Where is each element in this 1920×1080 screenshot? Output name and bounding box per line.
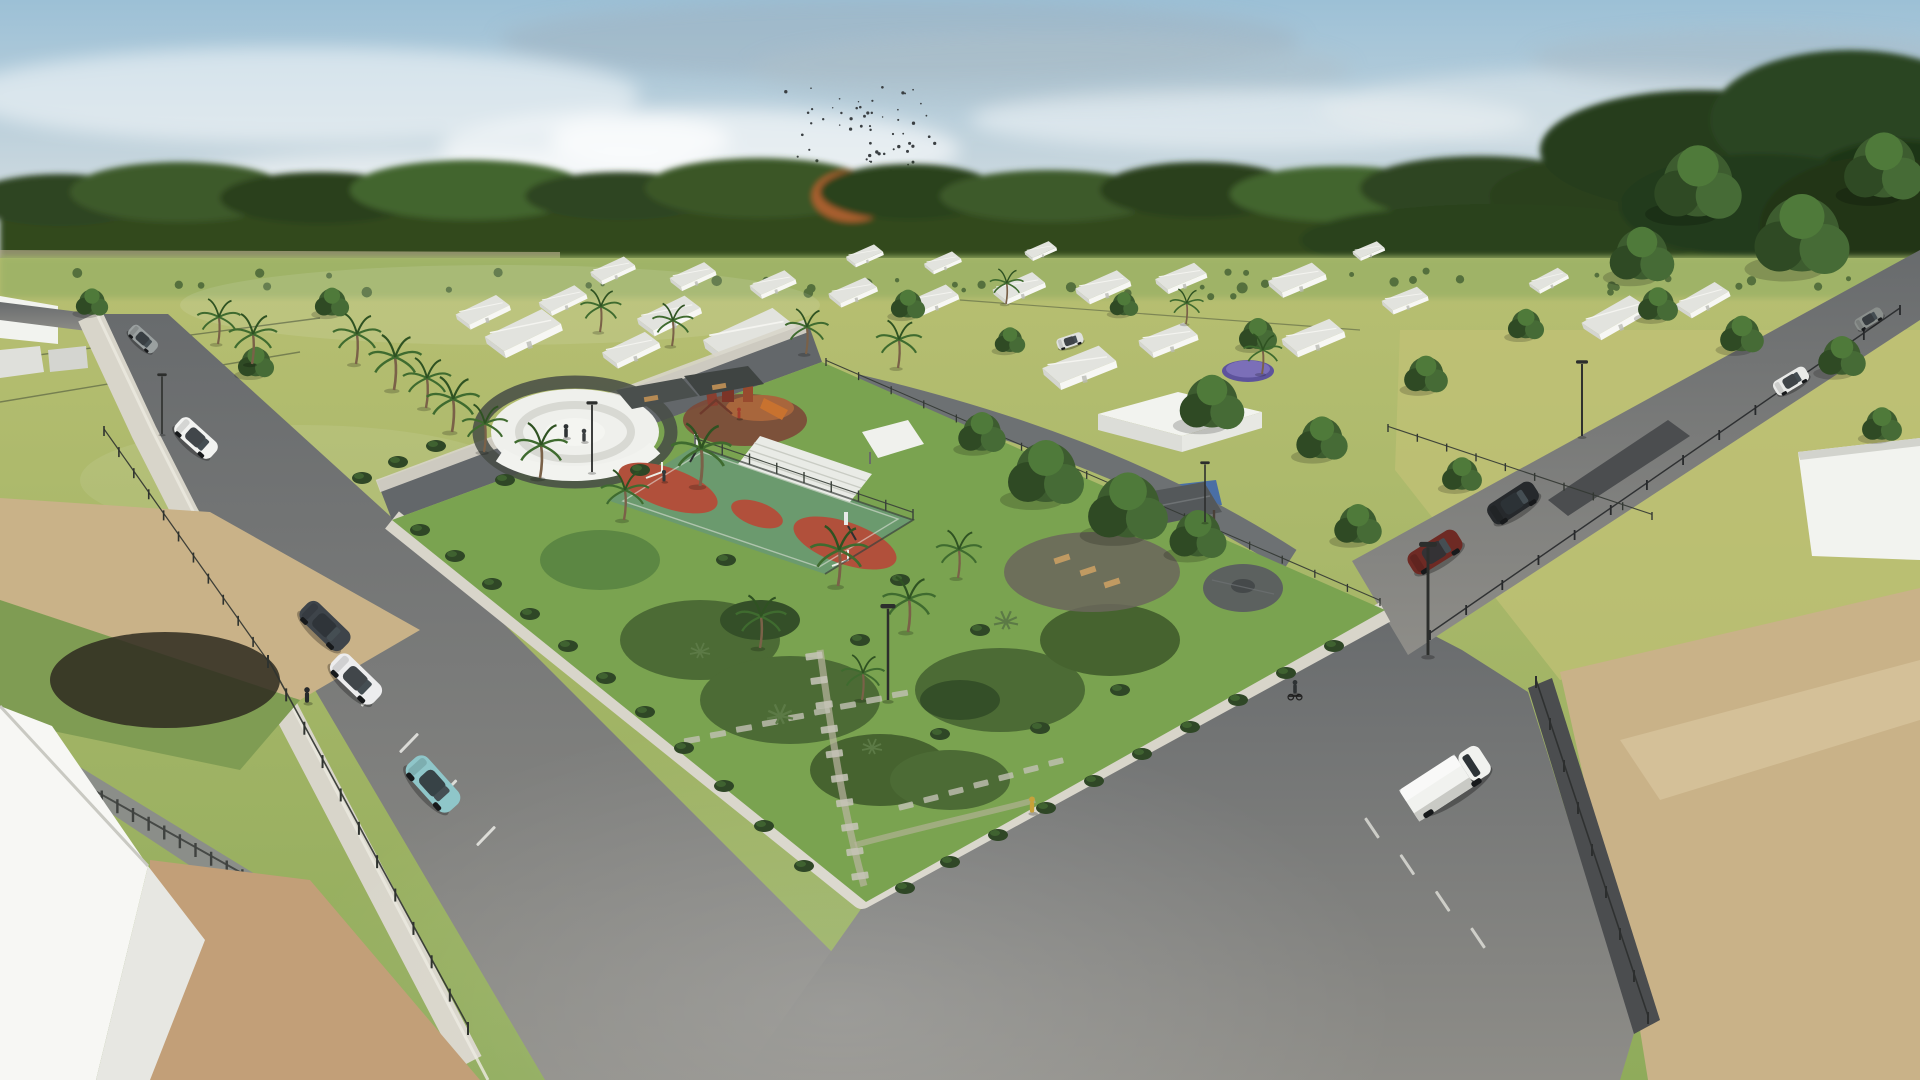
rendered-image <box>0 0 1920 1080</box>
kiosk-plaza <box>1004 532 1180 612</box>
kiosk-round-hut <box>1203 564 1283 612</box>
bare-shrub-mass <box>50 632 280 728</box>
right-edge-building <box>1798 438 1920 560</box>
purple-pool <box>1222 360 1274 382</box>
